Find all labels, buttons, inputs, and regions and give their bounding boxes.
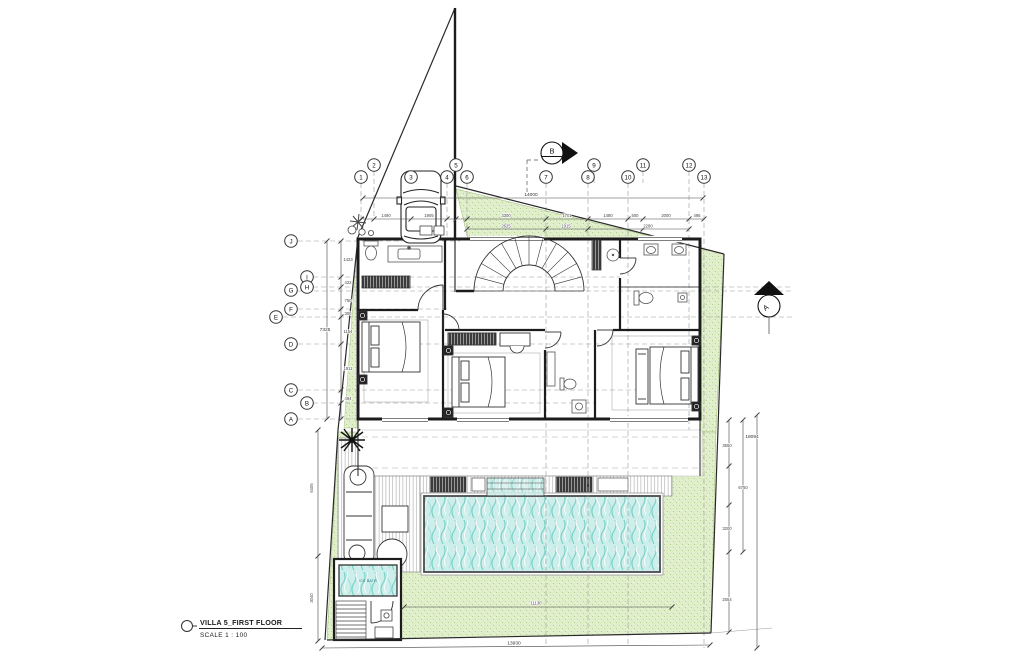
section-arrow-icon — [562, 142, 578, 164]
wall-speaker — [358, 375, 367, 384]
grid-row-D: D — [285, 338, 298, 351]
dim-right-total: 18094 — [745, 434, 759, 440]
grid-column-label: 1 — [359, 174, 363, 181]
grid-column-bubbles: 1 2 3 4 5 6 7 8 9 10 11 12 13 — [355, 159, 711, 184]
grid-column-label: 6 — [465, 174, 469, 181]
grid-row-bubbles: J I H G F E D C B A — [270, 235, 314, 426]
grid-column-1: 1 — [355, 171, 368, 184]
section-marker-b: B — [527, 142, 578, 192]
dim-top-chain-2: 3300 — [501, 213, 511, 218]
dim-left-lower-0: 6405 — [309, 483, 314, 493]
grid-row-A: A — [285, 413, 298, 426]
grid-column-8: 8 — [582, 171, 595, 184]
wall-speaker — [358, 311, 367, 320]
dim-right-inner-total: 6750 — [738, 485, 748, 490]
grid-row-B: B — [301, 397, 314, 410]
dim-top-chain-5: 500 — [632, 213, 640, 218]
wardrobe-nw — [362, 276, 410, 288]
grid-row-H: H — [301, 281, 314, 294]
dim-pool-width: 11130 — [530, 601, 542, 606]
grid-row-F: F — [285, 303, 298, 316]
grid-column-5: 5 — [450, 159, 463, 172]
dim-top-chain-7: 495 — [694, 213, 702, 218]
pool-entry-steps — [487, 478, 544, 496]
grid-column-label: 3 — [409, 174, 413, 181]
dim-right-chain-0: 3550 — [722, 443, 732, 448]
dim-bottom-total: 13930 — [507, 641, 521, 647]
title-block: VILLA 5_FIRST FLOOR SCALE 1 : 100 — [182, 618, 303, 639]
section-marker-b-label: B — [549, 147, 554, 156]
outdoor-side-table — [382, 506, 408, 532]
dim-top-chain-1: 1905 — [424, 213, 434, 218]
grid-row-label: H — [305, 284, 309, 291]
grid-column-label: 4 — [445, 174, 449, 181]
floor-plan-drawing: ICE BATH — [0, 0, 1024, 660]
dim-top-chain-4: 1480 — [603, 213, 613, 218]
grid-column-label: 8 — [586, 174, 590, 181]
grid-row-label: F — [289, 306, 293, 313]
terrace-slab — [358, 430, 702, 476]
dim-top-chain-3: 1701 — [562, 213, 572, 218]
grid-column-label: 2 — [372, 162, 376, 169]
wall-speaker — [444, 346, 453, 355]
grid-column-6: 6 — [461, 171, 474, 184]
bench — [636, 349, 648, 404]
ice-bath-bench — [375, 627, 393, 638]
outdoor-shower — [381, 610, 392, 621]
dim-left-chain-6: 494 — [345, 396, 353, 401]
bed-mid — [452, 357, 505, 407]
drawing-scale: SCALE 1 : 100 — [200, 632, 248, 639]
dim-right-chain-2: 2554 — [722, 597, 732, 602]
grid-row-label: D — [289, 341, 294, 348]
dim-top-chain2-0: 2625 — [501, 224, 511, 229]
grid-column-10: 10 — [622, 171, 635, 184]
grid-row-label: C — [289, 387, 294, 394]
grid-column-label: 12 — [686, 162, 693, 169]
grid-row-G: G — [285, 284, 298, 297]
dim-left-total: 7325 — [320, 327, 331, 333]
ice-bath-room: ICE BATH — [334, 559, 401, 640]
grid-row-J: J — [285, 235, 298, 248]
grid-row-label: E — [274, 314, 278, 321]
section-arrow-icon — [754, 281, 784, 295]
grid-column-7: 7 — [540, 171, 553, 184]
floor-plan-sheet: ICE BATH — [0, 0, 1024, 660]
dim-top-chain2-1: 1915 — [561, 224, 571, 229]
dim-top-total: 14000 — [524, 192, 538, 198]
grid-column-12: 12 — [683, 159, 696, 172]
grid-column-2: 2 — [368, 159, 381, 172]
grid-column-label: 13 — [701, 174, 708, 181]
wardrobe-mid — [448, 333, 496, 345]
grid-row-label: B — [305, 400, 309, 407]
dim-right-chain-1: 3200 — [722, 526, 732, 531]
grid-row-label: J — [289, 238, 292, 245]
grid-column-label: 11 — [640, 162, 647, 169]
dim-right — [727, 413, 760, 651]
grid-row-label: G — [289, 287, 294, 294]
grid-column-label: 9 — [592, 162, 596, 169]
grid-column-13: 13 — [698, 171, 711, 184]
wall-speaker — [692, 336, 701, 345]
ice-bath-stairs — [336, 601, 366, 639]
drawing-title: VILLA 5_FIRST FLOOR — [200, 618, 283, 627]
dim-top-chain2-2: 2280 — [643, 224, 653, 229]
wall-speaker — [444, 408, 453, 417]
dim-left-chain-1: 422 — [345, 280, 353, 285]
desk — [500, 333, 530, 346]
grid-column-9: 9 — [588, 159, 601, 172]
dim-left-chain-0: 1423 — [343, 257, 353, 262]
wall-speaker — [692, 402, 701, 411]
dim-left-chain-4: 1154 — [343, 329, 353, 334]
grid-column-4: 4 — [441, 171, 454, 184]
boundary-bottom-ext — [711, 628, 772, 633]
pool — [424, 496, 660, 572]
grid-column-label: 10 — [625, 174, 632, 181]
grid-row-E: E — [270, 311, 283, 324]
grid-column-11: 11 — [637, 159, 650, 172]
section-marker-a: A — [754, 281, 784, 334]
grid-column-label: 5 — [454, 162, 458, 169]
dim-left-lower-1: 3040 — [309, 593, 314, 603]
dim-top-chain-6: 2000 — [661, 213, 671, 218]
dim-left-chain-5: 1911 — [343, 366, 353, 371]
grid-column-label: 7 — [544, 174, 548, 181]
grid-column-3: 3 — [405, 171, 418, 184]
dim-top-chain-0: 1490 — [381, 213, 391, 218]
grid-row-C: C — [285, 384, 298, 397]
ice-bath-label: ICE BATH — [359, 579, 377, 583]
dim-left-chain-2: 750 — [345, 298, 353, 303]
drawing-title-icon — [182, 621, 193, 632]
dim-left-chain-3: 300 — [345, 311, 353, 316]
outdoor-sofa — [344, 466, 374, 564]
